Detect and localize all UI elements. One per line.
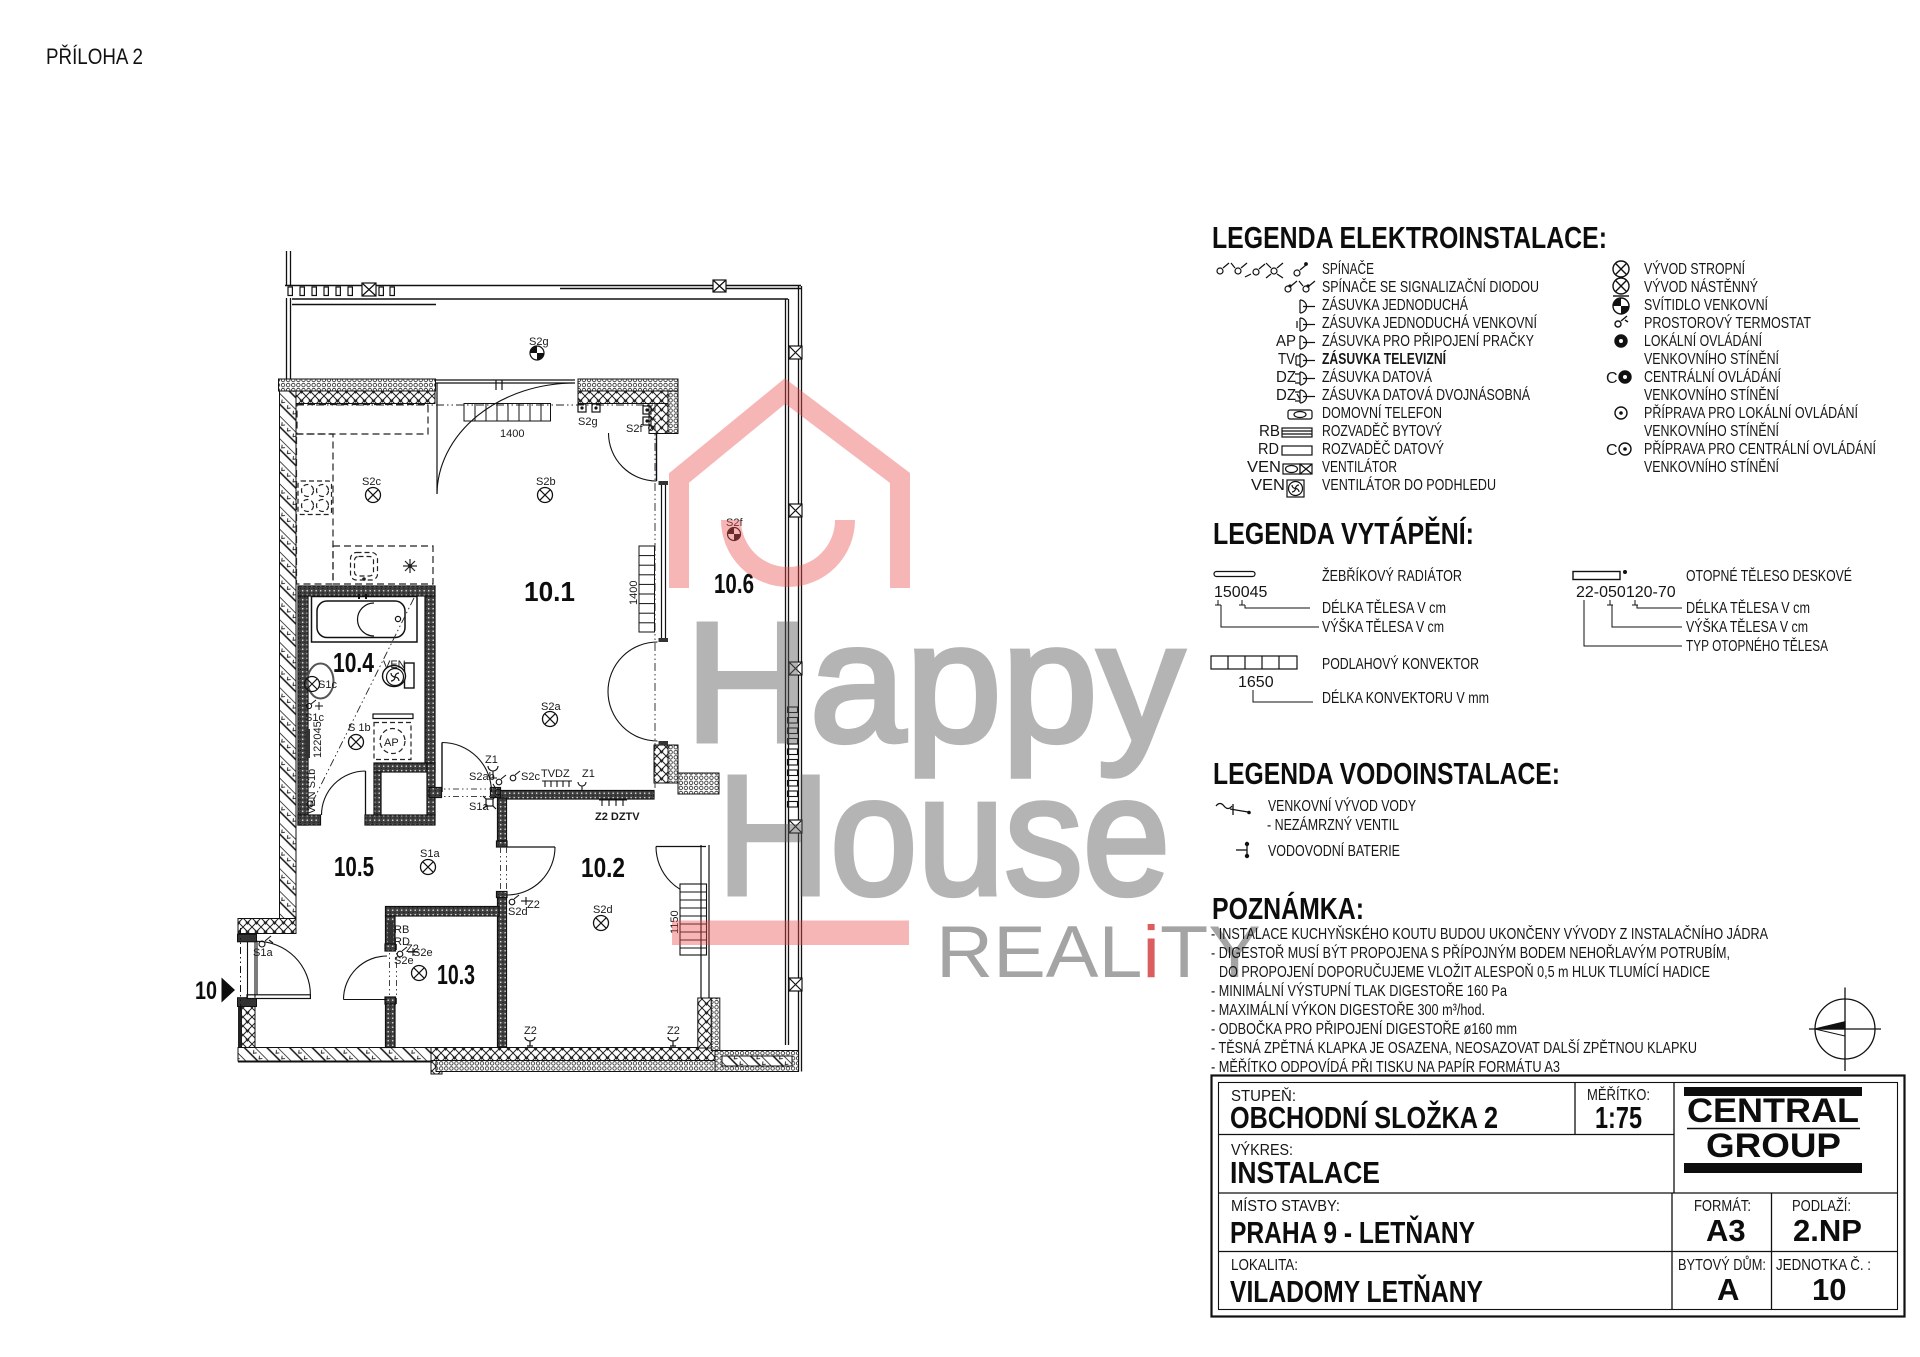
svg-text:SPÍNAČE SE SIGNALIZAČNÍ DIODOU: SPÍNAČE SE SIGNALIZAČNÍ DIODOU bbox=[1322, 277, 1539, 296]
svg-text:- TĚSNÁ ZPĚTNÁ KLAPKA JE OSAZE: - TĚSNÁ ZPĚTNÁ KLAPKA JE OSAZENA, NEOSAZ… bbox=[1211, 1038, 1697, 1057]
svg-text:ROZVADĚČ BYTOVÝ: ROZVADĚČ BYTOVÝ bbox=[1322, 421, 1442, 440]
svg-text:SVÍTIDLO VENKOVNÍ: SVÍTIDLO VENKOVNÍ bbox=[1644, 295, 1768, 314]
svg-text:10.2: 10.2 bbox=[581, 852, 625, 883]
svg-text:- DIGESTOŘ MUSÍ BÝT PROPOJENA: - DIGESTOŘ MUSÍ BÝT PROPOJENA S PŘÍPOJNÝ… bbox=[1211, 943, 1730, 962]
svg-text:S2d: S2d bbox=[508, 906, 528, 918]
svg-text:CENTRÁLNÍ OVLÁDÁNÍ: CENTRÁLNÍ OVLÁDÁNÍ bbox=[1644, 367, 1781, 386]
svg-text:VÝŠKA TĚLESA V cm: VÝŠKA TĚLESA V cm bbox=[1322, 617, 1444, 636]
svg-text:VENTILÁTOR DO PODHLEDU: VENTILÁTOR DO PODHLEDU bbox=[1322, 475, 1496, 494]
svg-text:DO PROPOJENÍ DOPORUČUJEME VLOŽ: DO PROPOJENÍ DOPORUČUJEME VLOŽIT ALESPOŇ… bbox=[1219, 962, 1710, 981]
svg-text:ZÁSUVKA JEDNODUCHÁ: ZÁSUVKA JEDNODUCHÁ bbox=[1322, 295, 1468, 314]
svg-text:Z2: Z2 bbox=[524, 1025, 537, 1037]
svg-text:DÉLKA TĚLESA V cm: DÉLKA TĚLESA V cm bbox=[1322, 598, 1446, 617]
svg-text:S2d: S2d bbox=[593, 904, 613, 916]
svg-text:- MINIMÁLNÍ VÝSTUPNÍ TLAK DIGE: - MINIMÁLNÍ VÝSTUPNÍ TLAK DIGESTOŘE 160 … bbox=[1211, 981, 1507, 1000]
svg-text:S2c: S2c bbox=[362, 476, 381, 488]
svg-text:DOMOVNÍ TELEFON: DOMOVNÍ TELEFON bbox=[1322, 403, 1442, 422]
svg-text:LEGENDA VYTÁPĚNÍ:: LEGENDA VYTÁPĚNÍ: bbox=[1213, 515, 1474, 551]
svg-text:10: 10 bbox=[195, 977, 217, 1005]
svg-text:10.1: 10.1 bbox=[524, 576, 575, 607]
svg-text:VILADOMY LETŇANY: VILADOMY LETŇANY bbox=[1230, 1273, 1483, 1309]
svg-text:GROUP: GROUP bbox=[1706, 1127, 1841, 1165]
svg-text:S2e: S2e bbox=[394, 955, 414, 967]
svg-text:ROZVADĚČ DATOVÝ: ROZVADĚČ DATOVÝ bbox=[1322, 439, 1444, 458]
svg-text:MÍSTO STAVBY:: MÍSTO STAVBY: bbox=[1231, 1196, 1340, 1215]
svg-text:ZÁSUVKA TELEVIZNÍ: ZÁSUVKA TELEVIZNÍ bbox=[1322, 349, 1446, 368]
svg-text:S2c: S2c bbox=[521, 771, 540, 783]
svg-text:PRAHA 9 - LETŇANY: PRAHA 9 - LETŇANY bbox=[1230, 1214, 1475, 1250]
svg-text:S2g: S2g bbox=[578, 416, 598, 428]
svg-text:1400: 1400 bbox=[628, 581, 640, 605]
svg-text:1650: 1650 bbox=[1238, 674, 1274, 691]
svg-text:RB: RB bbox=[1259, 423, 1280, 440]
svg-text:PROSTOROVÝ TERMOSTAT: PROSTOROVÝ TERMOSTAT bbox=[1644, 313, 1811, 332]
svg-text:OTOPNÉ TĚLESO DESKOVÉ: OTOPNÉ TĚLESO DESKOVÉ bbox=[1686, 566, 1852, 585]
svg-text:S2ab: S2ab bbox=[469, 771, 495, 783]
svg-text:- NEZÁMRZNÝ VENTIL: - NEZÁMRZNÝ VENTIL bbox=[1267, 815, 1399, 834]
svg-text:PŘÍPRAVA PRO LOKÁLNÍ OVLÁDÁNÍ: PŘÍPRAVA PRO LOKÁLNÍ OVLÁDÁNÍ bbox=[1644, 403, 1858, 422]
svg-text:A: A bbox=[1717, 1272, 1739, 1307]
svg-text:SPÍNAČE: SPÍNAČE bbox=[1322, 259, 1374, 278]
svg-text:VÝVOD NÁSTĚNNÝ: VÝVOD NÁSTĚNNÝ bbox=[1644, 277, 1758, 296]
svg-text:S1c: S1c bbox=[318, 679, 337, 691]
svg-text:2.NP: 2.NP bbox=[1793, 1213, 1862, 1248]
svg-text:TV: TV bbox=[1278, 351, 1295, 368]
svg-text:VODOVODNÍ BATERIE: VODOVODNÍ BATERIE bbox=[1268, 841, 1400, 860]
svg-text:RD: RD bbox=[1258, 441, 1279, 458]
svg-text:VÝVOD STROPNÍ: VÝVOD STROPNÍ bbox=[1644, 259, 1745, 278]
svg-text:House: House bbox=[717, 741, 1170, 931]
svg-text:AP: AP bbox=[1276, 333, 1296, 350]
svg-text:VEN: VEN bbox=[1247, 459, 1281, 476]
svg-text:VÝŠKA TĚLESA V cm: VÝŠKA TĚLESA V cm bbox=[1686, 617, 1808, 636]
svg-text:ZÁSUVKA DATOVÁ: ZÁSUVKA DATOVÁ bbox=[1322, 367, 1432, 386]
svg-text:A3: A3 bbox=[1706, 1213, 1746, 1248]
svg-text:DÉLKA KONVEKTORU V mm: DÉLKA KONVEKTORU V mm bbox=[1322, 688, 1489, 707]
svg-text:1400: 1400 bbox=[500, 428, 524, 440]
svg-text:C: C bbox=[1606, 442, 1618, 459]
svg-text:10: 10 bbox=[1812, 1272, 1846, 1307]
svg-text:PODLAHOVÝ KONVEKTOR: PODLAHOVÝ KONVEKTOR bbox=[1322, 654, 1479, 673]
svg-text:DÉLKA TĚLESA V cm: DÉLKA TĚLESA V cm bbox=[1686, 598, 1810, 617]
svg-text:TVDZ: TVDZ bbox=[541, 768, 570, 780]
svg-text:VENKOVNÍHO STÍNĚNÍ: VENKOVNÍHO STÍNĚNÍ bbox=[1644, 349, 1779, 368]
svg-text:- INSTALACE KUCHYŇSKÉHO KOUTU: - INSTALACE KUCHYŇSKÉHO KOUTU BUDOU UKON… bbox=[1211, 924, 1768, 943]
svg-text:10.4: 10.4 bbox=[333, 647, 374, 678]
svg-text:22-050120-70: 22-050120-70 bbox=[1576, 584, 1676, 601]
svg-text:VEN S1b: VEN S1b bbox=[306, 769, 318, 814]
svg-text:OBCHODNÍ SLOŽKA 2: OBCHODNÍ SLOŽKA 2 bbox=[1230, 1099, 1498, 1135]
svg-text:S1a: S1a bbox=[253, 947, 273, 959]
svg-text:RB: RB bbox=[394, 924, 409, 936]
svg-text:DZ: DZ bbox=[1276, 387, 1296, 404]
svg-text:VENKOVNÍ VÝVOD VODY: VENKOVNÍ VÝVOD VODY bbox=[1268, 796, 1416, 815]
svg-text:VENTILÁTOR: VENTILÁTOR bbox=[1322, 457, 1397, 476]
svg-text:Z1: Z1 bbox=[582, 768, 595, 780]
svg-text:Z1: Z1 bbox=[485, 754, 498, 766]
svg-text:TYP OTOPNÉHO TĚLESA: TYP OTOPNÉHO TĚLESA bbox=[1686, 636, 1828, 655]
svg-text:AP: AP bbox=[384, 737, 399, 749]
svg-text:LEGENDA ELEKTROINSTALACE:: LEGENDA ELEKTROINSTALACE: bbox=[1212, 220, 1607, 255]
svg-text:S2f: S2f bbox=[626, 423, 643, 435]
svg-text:Z2: Z2 bbox=[527, 899, 540, 911]
svg-text:C: C bbox=[1606, 370, 1618, 387]
svg-text:VEN: VEN bbox=[383, 659, 406, 671]
svg-text:Z2: Z2 bbox=[667, 1025, 680, 1037]
svg-text:INSTALACE: INSTALACE bbox=[1230, 1155, 1380, 1190]
svg-text:VEN: VEN bbox=[1251, 477, 1285, 494]
svg-text:S1a: S1a bbox=[420, 848, 440, 860]
svg-text:CENTRAL: CENTRAL bbox=[1687, 1092, 1859, 1130]
svg-text:PŘÍLOHA 2: PŘÍLOHA 2 bbox=[46, 44, 143, 69]
svg-text:PŘÍPRAVA PRO CENTRÁLNÍ OVLÁDÁN: PŘÍPRAVA PRO CENTRÁLNÍ OVLÁDÁNÍ bbox=[1644, 439, 1876, 458]
svg-text:ZÁSUVKA PRO PŘIPOJENÍ PRAČKY: ZÁSUVKA PRO PŘIPOJENÍ PRAČKY bbox=[1322, 331, 1534, 350]
svg-text:- MĚŘÍTKO ODPOVÍDÁ PŘI TISKU N: - MĚŘÍTKO ODPOVÍDÁ PŘI TISKU NA PAPÍR FO… bbox=[1211, 1057, 1560, 1076]
svg-text:VENKOVNÍHO STÍNĚNÍ: VENKOVNÍHO STÍNĚNÍ bbox=[1644, 421, 1779, 440]
svg-text:LEGENDA VODOINSTALACE:: LEGENDA VODOINSTALACE: bbox=[1213, 756, 1560, 791]
svg-text:Z2 DZTV: Z2 DZTV bbox=[595, 811, 640, 823]
svg-text:ZÁSUVKA DATOVÁ DVOJNÁSOBNÁ: ZÁSUVKA DATOVÁ DVOJNÁSOBNÁ bbox=[1322, 385, 1530, 404]
svg-text:S2b: S2b bbox=[536, 476, 556, 488]
svg-text:ZÁSUVKA JEDNODUCHÁ VENKOVNÍ: ZÁSUVKA JEDNODUCHÁ VENKOVNÍ bbox=[1322, 313, 1537, 332]
svg-text:10.5: 10.5 bbox=[334, 851, 374, 882]
svg-text:- MAXIMÁLNÍ VÝKON DIGESTOŘE 30: - MAXIMÁLNÍ VÝKON DIGESTOŘE 300 m³/hod. bbox=[1211, 1000, 1485, 1019]
svg-text:LOKÁLNÍ OVLÁDÁNÍ: LOKÁLNÍ OVLÁDÁNÍ bbox=[1644, 331, 1762, 350]
svg-text:VENKOVNÍHO STÍNĚNÍ: VENKOVNÍHO STÍNĚNÍ bbox=[1644, 385, 1779, 404]
svg-text:10.3: 10.3 bbox=[437, 959, 475, 990]
svg-text:S2e: S2e bbox=[413, 947, 433, 959]
svg-text:DZ: DZ bbox=[1276, 369, 1296, 386]
svg-text:VENKOVNÍHO STÍNĚNÍ: VENKOVNÍHO STÍNĚNÍ bbox=[1644, 457, 1779, 476]
svg-text:ŽEBŘÍKOVÝ RADIÁTOR: ŽEBŘÍKOVÝ RADIÁTOR bbox=[1322, 566, 1462, 585]
svg-text:- ODBOČKA PRO PŘIPOJENÍ DIGEST: - ODBOČKA PRO PŘIPOJENÍ DIGESTOŘE ø160 m… bbox=[1211, 1019, 1517, 1038]
svg-text:1:75: 1:75 bbox=[1595, 1100, 1642, 1135]
svg-text:150045: 150045 bbox=[1214, 584, 1267, 601]
svg-text:POZNÁMKA:: POZNÁMKA: bbox=[1212, 891, 1364, 926]
svg-text:LOKALITA:: LOKALITA: bbox=[1231, 1257, 1298, 1274]
svg-text:122045: 122045 bbox=[312, 721, 324, 758]
